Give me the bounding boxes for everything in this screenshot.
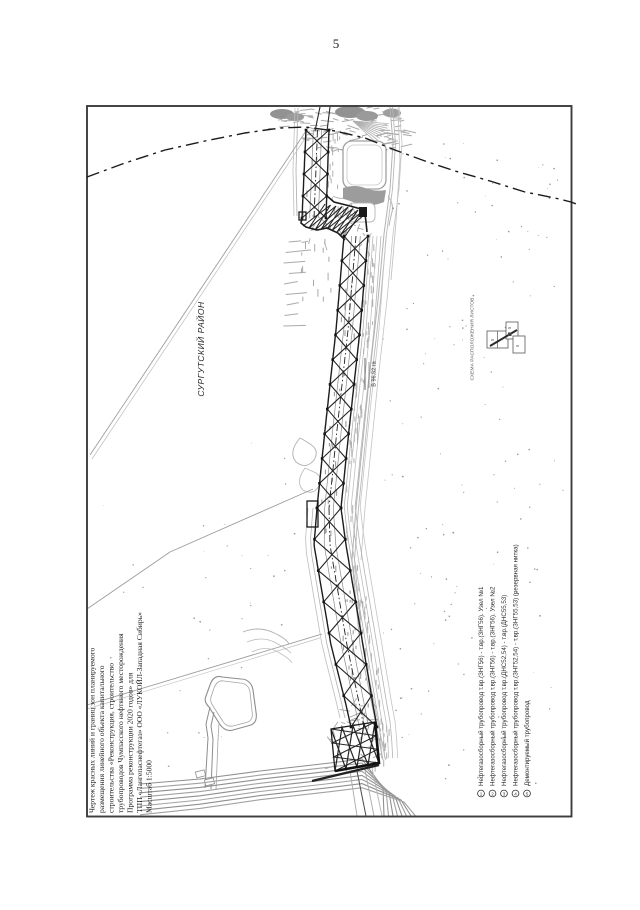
svg-text:2: 2 — [491, 791, 494, 796]
svg-text:5: 5 — [526, 791, 529, 796]
svg-text:В 96,52 га: В 96,52 га — [372, 360, 378, 386]
svg-text:Нефтегазосборный трубопровод т: Нефтегазосборный трубопровод т.вр.(ЗНГ56… — [490, 586, 497, 786]
svg-text:строительства «Реконструкция,: строительства «Реконструкция, строительс… — [107, 663, 116, 813]
svg-text:3: 3 — [503, 791, 506, 796]
svg-text:Масштаб 1:5000: Масштаб 1:5000 — [145, 760, 154, 813]
svg-text:5: 5 — [333, 36, 340, 51]
svg-text:4: 4 — [514, 791, 517, 796]
svg-text:СУРГУТСКИЙ РАЙОН: СУРГУТСКИЙ РАЙОН — [195, 301, 206, 397]
svg-text:Чертеж красных линий и границ: Чертеж красных линий и границ зон планир… — [88, 647, 97, 813]
svg-text:СХЕМА РАСПОЛОЖЕНИЯ ЛИСТОВ: СХЕМА РАСПОЛОЖЕНИЯ ЛИСТОВ — [470, 298, 476, 381]
svg-text:Демонтируемый трубопровод: Демонтируемый трубопровод — [524, 700, 531, 786]
svg-text:размещения линейного объекта к: размещения линейного объекта капитальног… — [97, 665, 106, 813]
svg-text:Нефтегазосборный трубопровод т: Нефтегазосборный трубопровод т.вр.(ЗНГ56… — [478, 586, 485, 786]
svg-text:Программа реконструкции 2020 г: Программа реконструкции 2020 годов» для — [126, 672, 135, 813]
svg-text:1: 1 — [480, 791, 483, 796]
svg-text:ТПП «Лангепаснефтегаз» ООО «ЛУ: ТПП «Лангепаснефтегаз» ООО «ЛУКОЙЛ-Запад… — [135, 612, 144, 813]
svg-text:трубопроводов Чумпасского нефт: трубопроводов Чумпасского нефтяного мест… — [116, 633, 125, 813]
svg-text:Нефтегазосборный трубопровод т: Нефтегазосборный трубопровод т.вр.(ДНС52… — [501, 595, 508, 786]
svg-text:Нефтегазосборный трубопровод т: Нефтегазосборный трубопровод т.вр.(ЗНГ52… — [513, 544, 520, 786]
